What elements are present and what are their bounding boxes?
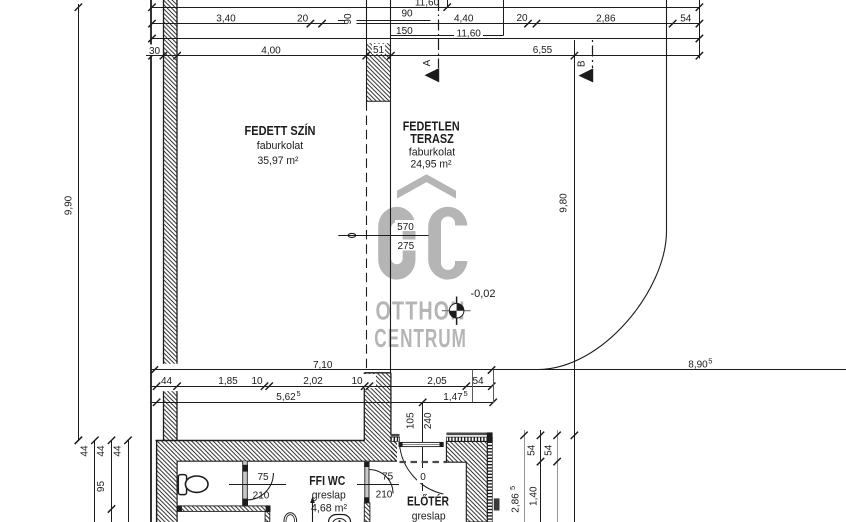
svg-text:1,40: 1,40 bbox=[528, 486, 539, 506]
svg-text:5: 5 bbox=[508, 486, 517, 490]
svg-text:1,47: 1,47 bbox=[443, 392, 463, 403]
svg-text:44: 44 bbox=[113, 445, 124, 457]
svg-text:1,85: 1,85 bbox=[218, 376, 238, 387]
svg-text:75: 75 bbox=[382, 472, 394, 483]
svg-text:90: 90 bbox=[343, 13, 354, 25]
svg-text:2,02: 2,02 bbox=[303, 376, 323, 387]
svg-text:10: 10 bbox=[351, 376, 363, 387]
svg-text:2,86: 2,86 bbox=[510, 493, 521, 513]
svg-text:275: 275 bbox=[397, 241, 414, 252]
svg-text:9,90: 9,90 bbox=[64, 195, 75, 215]
svg-text:2,05: 2,05 bbox=[427, 376, 447, 387]
svg-text:6,55: 6,55 bbox=[533, 45, 553, 56]
svg-text:faburkolat: faburkolat bbox=[409, 147, 456, 159]
svg-text:20: 20 bbox=[516, 13, 528, 24]
svg-text:54: 54 bbox=[543, 444, 554, 456]
svg-text:90: 90 bbox=[401, 8, 413, 19]
svg-text:B: B bbox=[577, 60, 588, 67]
svg-text:44: 44 bbox=[161, 376, 173, 387]
svg-text:10: 10 bbox=[251, 376, 263, 387]
svg-text:570: 570 bbox=[397, 222, 414, 233]
svg-text:FFI WC: FFI WC bbox=[309, 474, 345, 488]
svg-text:A: A bbox=[422, 59, 433, 66]
svg-text:240: 240 bbox=[423, 412, 434, 429]
svg-text:54: 54 bbox=[680, 14, 692, 25]
svg-text:greslap: greslap bbox=[412, 510, 446, 522]
svg-text:51: 51 bbox=[373, 45, 385, 56]
svg-text:5: 5 bbox=[708, 357, 712, 366]
svg-text:FEDETLEN: FEDETLEN bbox=[403, 119, 460, 133]
svg-text:20: 20 bbox=[297, 14, 309, 25]
svg-text:FEDETT SZÍN: FEDETT SZÍN bbox=[245, 123, 316, 138]
svg-text:54: 54 bbox=[472, 376, 484, 387]
svg-text:faburkolat: faburkolat bbox=[257, 140, 304, 152]
svg-text:44: 44 bbox=[80, 445, 91, 457]
svg-text:CENTRUM: CENTRUM bbox=[374, 323, 467, 353]
svg-text:ELŐTÉR: ELŐTÉR bbox=[407, 493, 449, 508]
svg-text:75: 75 bbox=[257, 472, 269, 483]
svg-text:4,00: 4,00 bbox=[261, 46, 281, 57]
svg-text:35,97 m²: 35,97 m² bbox=[258, 155, 299, 167]
svg-text:5: 5 bbox=[297, 389, 301, 398]
svg-text:-0,02: -0,02 bbox=[470, 288, 495, 300]
svg-text:4,68 m²: 4,68 m² bbox=[311, 503, 347, 515]
svg-text:5,62: 5,62 bbox=[276, 392, 296, 403]
svg-text:9,80: 9,80 bbox=[559, 193, 570, 213]
svg-text:210: 210 bbox=[376, 490, 393, 501]
svg-text:5: 5 bbox=[464, 389, 468, 398]
svg-text:TERASZ: TERASZ bbox=[410, 132, 454, 146]
svg-text:0: 0 bbox=[420, 472, 426, 483]
svg-text:11,60: 11,60 bbox=[415, 0, 440, 9]
svg-text:150: 150 bbox=[396, 26, 413, 37]
svg-text:54: 54 bbox=[527, 444, 538, 456]
svg-text:24,95 m²: 24,95 m² bbox=[411, 159, 452, 171]
svg-text:greslap: greslap bbox=[312, 489, 346, 501]
svg-text:7,10: 7,10 bbox=[313, 360, 333, 371]
svg-text:8,90: 8,90 bbox=[688, 360, 708, 371]
svg-text:3,40: 3,40 bbox=[216, 14, 236, 25]
svg-text:44: 44 bbox=[96, 445, 107, 457]
svg-text:11,60: 11,60 bbox=[457, 28, 482, 39]
svg-text:4,40: 4,40 bbox=[454, 14, 474, 25]
svg-text:2,86: 2,86 bbox=[596, 14, 616, 25]
svg-text:105: 105 bbox=[406, 412, 417, 429]
svg-text:30: 30 bbox=[149, 46, 161, 57]
svg-text:95: 95 bbox=[96, 481, 107, 493]
